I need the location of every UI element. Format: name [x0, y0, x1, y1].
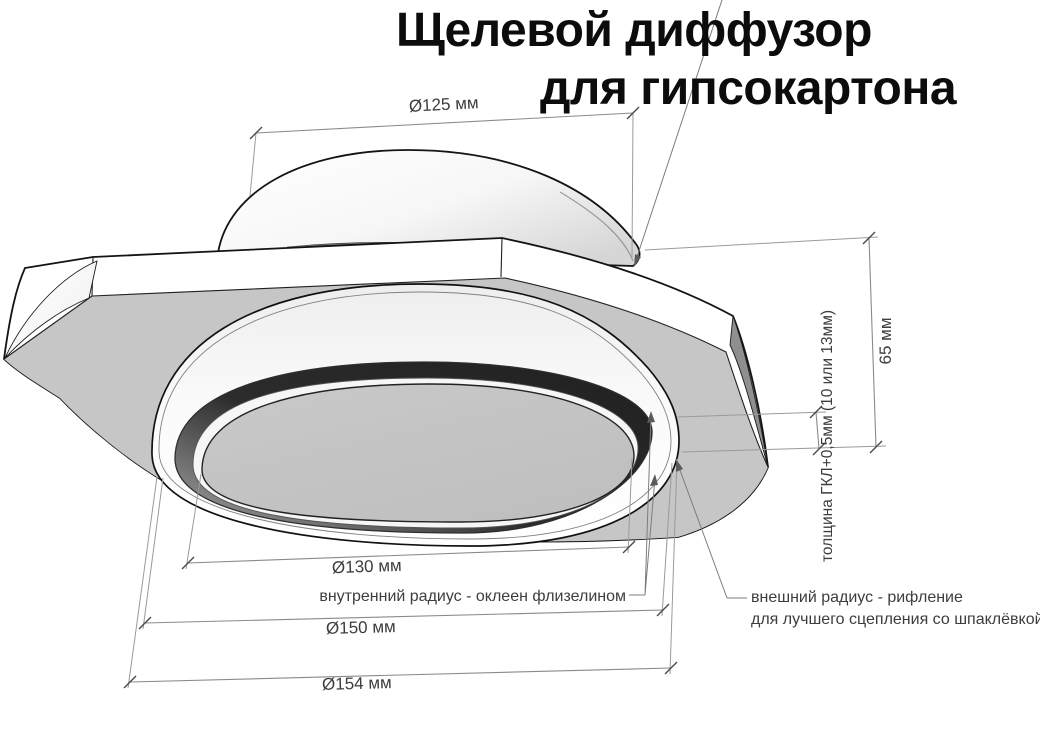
diffuser-technical-drawing: Ø125 мм 65 мм толщина ГКЛ+0,5мм (10 или …	[0, 0, 1040, 729]
dim-label-125: Ø125 мм	[408, 93, 479, 116]
dim-label-65: 65 мм	[876, 317, 895, 364]
callout-outer-radius-text-2: для лучшего сцепления со шпаклёвкой	[751, 611, 1040, 628]
dim-label-150: Ø150 мм	[326, 617, 396, 638]
dim-label-130: Ø130 мм	[332, 556, 402, 577]
title-line-1: Щелевой диффузор	[396, 4, 872, 57]
page-title: Щелевой диффузор для гипсокартона	[396, 4, 957, 115]
title-line-2: для гипсокартона	[540, 62, 957, 115]
callout-outer-radius-text-1: внешний радиус - рифление	[751, 589, 963, 606]
diffuser-object	[4, 150, 768, 546]
dim-label-gkl: толщина ГКЛ+0,5мм (10 или 13мм)	[819, 310, 836, 562]
inner-disc-face	[202, 384, 634, 522]
dim-label-154: Ø154 мм	[322, 673, 392, 694]
callout-inner-radius-text: внутренний радиус - оклеен флизелином	[319, 588, 626, 605]
